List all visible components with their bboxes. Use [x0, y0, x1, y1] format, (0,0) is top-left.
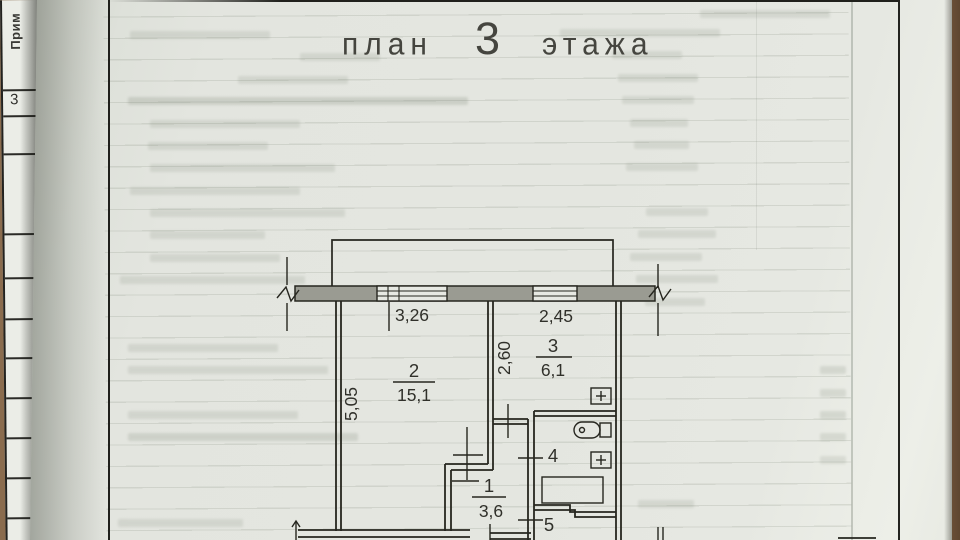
- document-page: план 3 этажа: [30, 0, 952, 540]
- bathtub-icon: [542, 477, 603, 503]
- bottom-wall-right-tick: [658, 527, 663, 540]
- sink-icon: [591, 452, 611, 468]
- floor-plan-svg: 3,26 2,45 2,60 5,05 2 15,1 3 6,1 1 3,6: [0, 0, 960, 540]
- dim-room2-depth: 5,05: [341, 387, 361, 421]
- side-row-number: 3: [10, 91, 19, 108]
- room-number: 5: [544, 514, 554, 535]
- room-area: 3,6: [479, 501, 503, 521]
- door-opening-marks: [389, 302, 543, 540]
- room-4-label: 4: [548, 445, 558, 466]
- apartment-walls: [298, 301, 876, 540]
- sink-icon: [591, 388, 611, 404]
- toilet-icon: [574, 422, 611, 438]
- room-number: 4: [548, 445, 558, 466]
- room-area: 6,1: [541, 360, 565, 380]
- dimensions: 3,26 2,45 2,60 5,05: [341, 305, 573, 421]
- scanned-floor-plan-page: Прим 3 план 3 этажа: [0, 0, 960, 540]
- room-number: 3: [548, 335, 558, 356]
- room-3-label: 3 6,1: [536, 335, 572, 380]
- dim-window-left: 3,26: [395, 305, 429, 325]
- room-number: 2: [409, 360, 419, 381]
- room-5-label: 5: [544, 514, 554, 535]
- dim-room3-depth: 2,60: [494, 341, 514, 375]
- window-left: [377, 286, 447, 301]
- room-number: 1: [484, 475, 494, 496]
- window-right: [533, 286, 577, 301]
- dim-window-right: 2,45: [539, 306, 573, 326]
- balcony-outline: [332, 240, 613, 287]
- wall-break-left-icon: [277, 257, 299, 331]
- room-area: 15,1: [397, 385, 431, 405]
- room-2-label: 2 15,1: [393, 360, 435, 405]
- exterior-wall: [295, 286, 655, 301]
- room-1-label: 1 3,6: [472, 475, 506, 521]
